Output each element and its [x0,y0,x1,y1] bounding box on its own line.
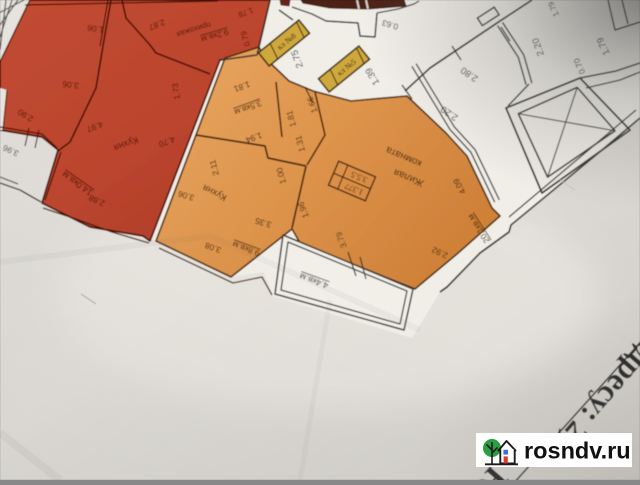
svg-text:rosndv.ru: rosndv.ru [524,438,631,464]
